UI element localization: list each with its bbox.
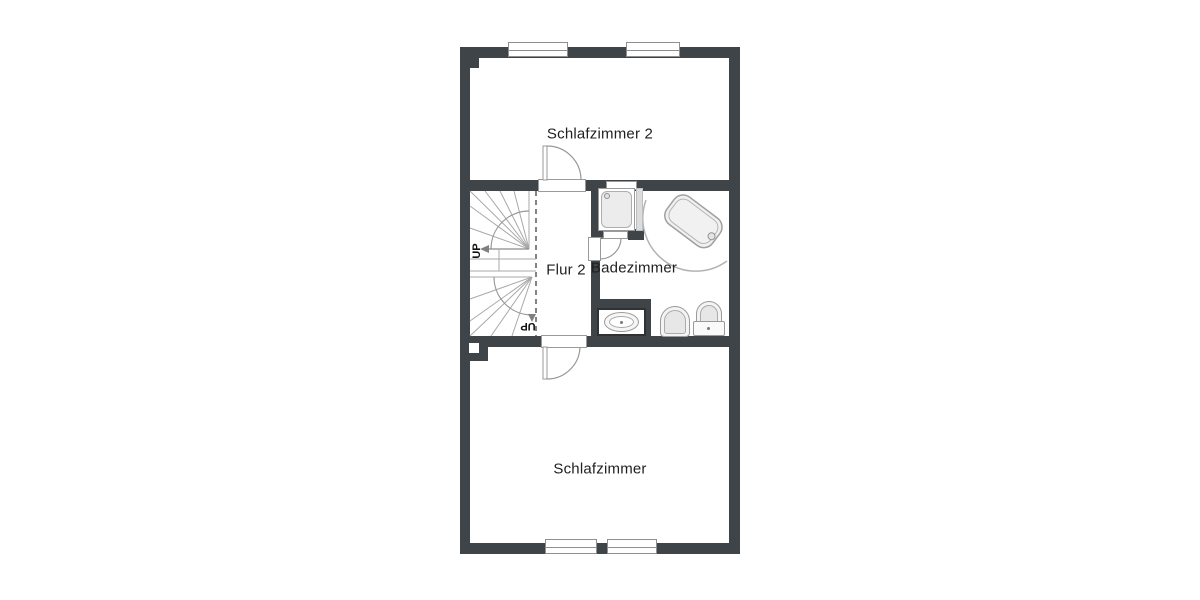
door-arc-bedroom2 (547, 146, 581, 180)
toilet-cistern-button (707, 327, 710, 330)
shower-glass-panel (636, 188, 643, 231)
bathtub (660, 191, 726, 252)
door-leaf-bedroom (543, 347, 547, 379)
room-label-bedroom: Schlafzimmer (553, 461, 646, 478)
bathtub-outer (660, 191, 726, 252)
room-label-bedroom2: Schlafzimmer 2 (547, 126, 653, 143)
plan-linework (0, 0, 1200, 600)
door-arc-bedroom (547, 347, 580, 379)
stair-treads-upper (470, 191, 529, 249)
sink-drain (620, 321, 623, 324)
shower-entry (603, 231, 628, 239)
door-bedroom2 (543, 146, 581, 180)
room-label-bathroom: Badezimmer (591, 260, 677, 277)
floor-plan-canvas: Schlafzimmer 2 Flur 2 Badezimmer Schlafz… (0, 0, 1200, 600)
stairs-up-label-upper: UP (471, 243, 483, 258)
room-label-hallway: Flur 2 (546, 262, 586, 279)
door-arc-bathroom (600, 238, 621, 259)
stairs-up-label-lower: UP (520, 320, 535, 332)
door-leaf-bedroom2 (543, 146, 547, 180)
shower-drain (604, 193, 610, 199)
door-bedroom (543, 347, 580, 379)
door-bathroom (600, 238, 621, 259)
bidet-inner (664, 310, 686, 334)
